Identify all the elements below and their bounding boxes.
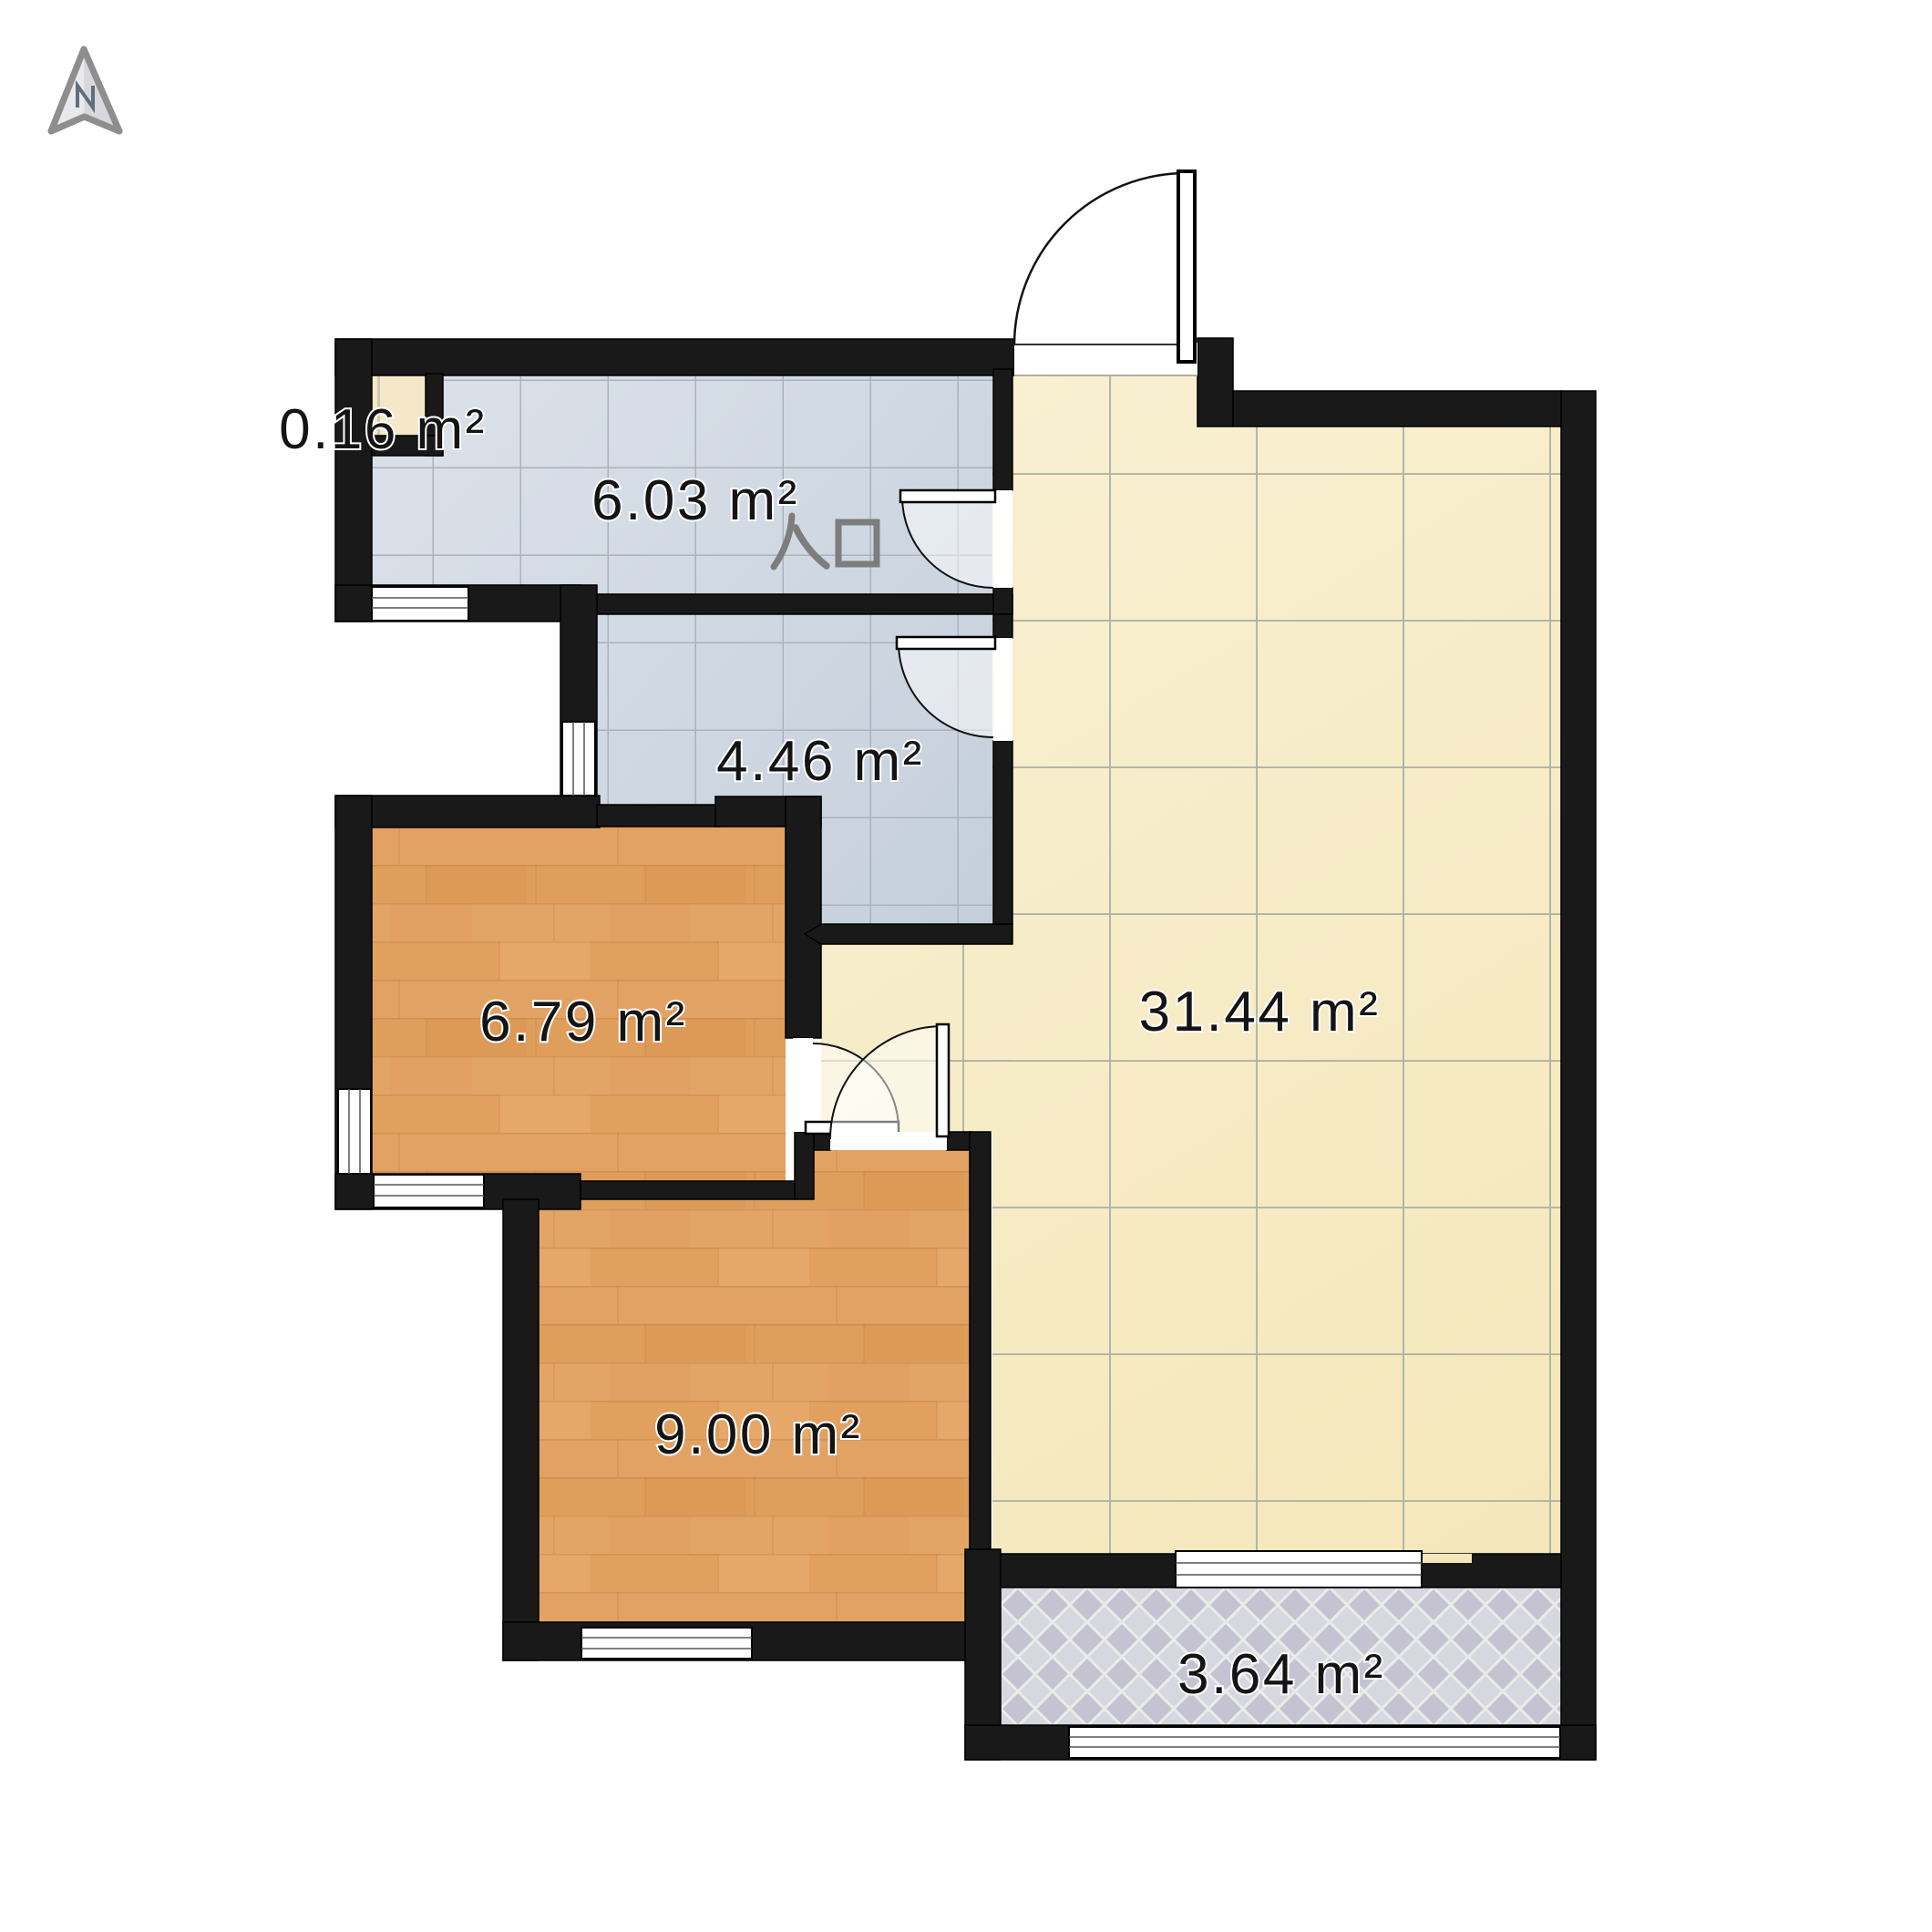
svg-text:0.16 m²: 0.16 m² <box>279 398 487 461</box>
svg-text:3.64 m²: 3.64 m² <box>1177 1643 1385 1706</box>
svg-text:6.79 m²: 6.79 m² <box>479 991 687 1053</box>
svg-text:31.44 m²: 31.44 m² <box>1139 981 1381 1043</box>
svg-text:9.00 m²: 9.00 m² <box>654 1403 862 1466</box>
svg-text:4.46 m²: 4.46 m² <box>716 730 924 793</box>
svg-text:6.03 m²: 6.03 m² <box>591 469 799 532</box>
